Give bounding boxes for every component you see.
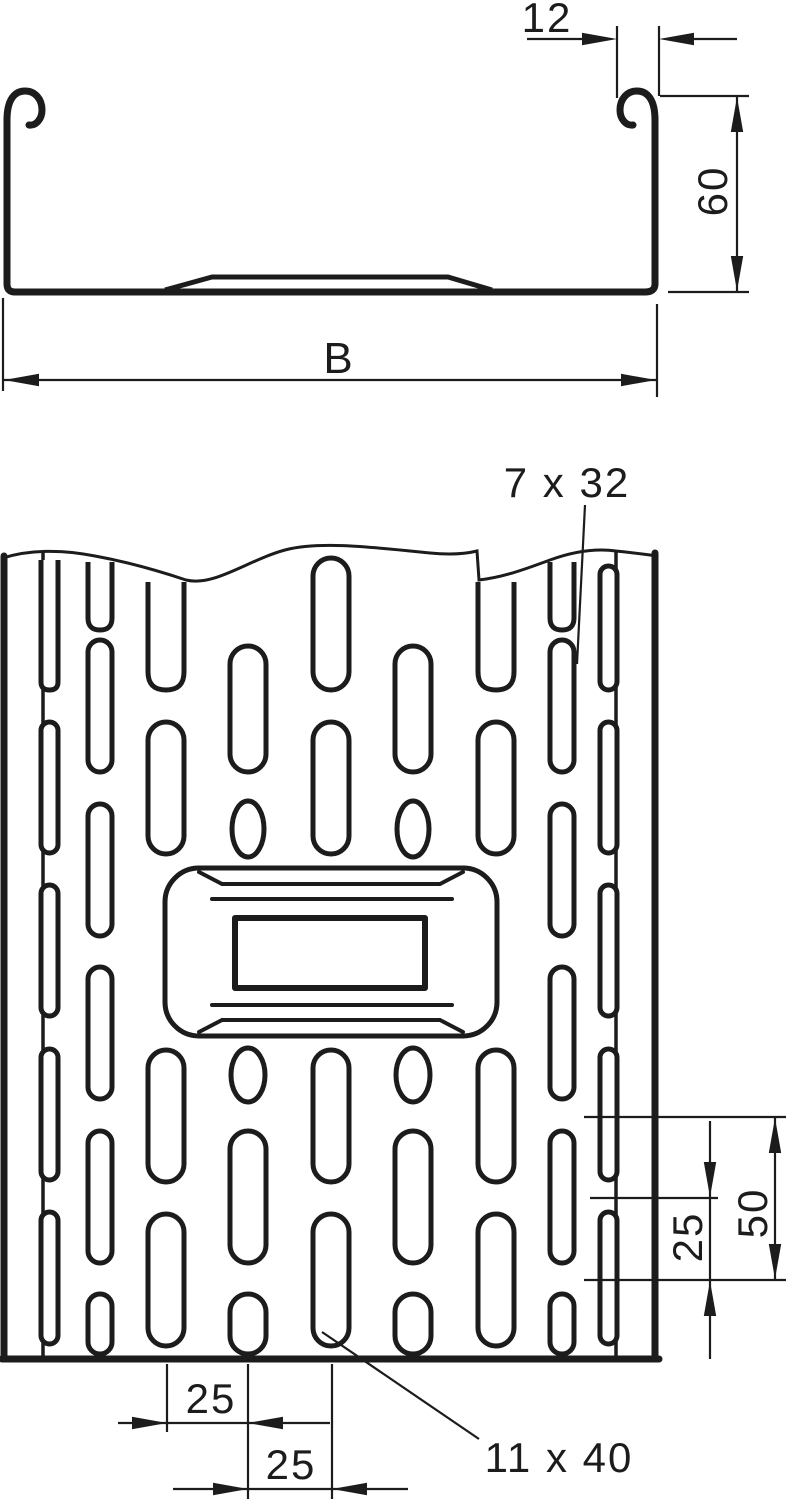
arrow-right-icon xyxy=(213,1483,248,1495)
arrow-right-icon xyxy=(582,33,617,45)
slot xyxy=(395,1131,431,1263)
slot-column-e-center xyxy=(313,558,349,1346)
oval-hole xyxy=(231,1048,265,1102)
slot xyxy=(41,885,58,1016)
slot xyxy=(313,722,349,854)
slot xyxy=(148,1050,184,1182)
emboss-outline xyxy=(165,868,497,1036)
oval-hole xyxy=(396,1048,430,1102)
dim-row-small-value: 25 xyxy=(664,1212,711,1263)
side-slot-size-label: 7 x 32 xyxy=(504,459,630,506)
slot xyxy=(600,566,617,690)
cable-tray-drawing: 12 60 B xyxy=(0,0,786,1500)
slot xyxy=(41,560,58,690)
slot xyxy=(550,804,574,936)
arrow-left-icon xyxy=(332,1483,367,1495)
slot xyxy=(550,1294,574,1354)
slot xyxy=(230,1294,266,1354)
arrow-up-icon xyxy=(731,97,743,132)
left-curl xyxy=(7,91,42,125)
profile-outline xyxy=(7,118,655,292)
slot xyxy=(41,1212,58,1344)
slot xyxy=(88,1131,112,1263)
slot xyxy=(313,1214,349,1346)
slot xyxy=(88,640,112,772)
dimension-width-b: B xyxy=(3,298,657,397)
slot xyxy=(600,1212,617,1344)
slot xyxy=(478,722,514,854)
slot xyxy=(395,646,431,772)
slot xyxy=(313,558,349,690)
dimension-height-60: 60 xyxy=(660,96,749,292)
slot xyxy=(148,1214,184,1346)
dim-flange-value: 12 xyxy=(522,0,573,41)
slot xyxy=(313,1050,349,1182)
slot xyxy=(230,646,266,772)
label-base-slot: 11 x 40 xyxy=(322,1332,633,1481)
slot xyxy=(41,1049,58,1180)
slot xyxy=(478,1050,514,1182)
slot xyxy=(478,1214,514,1346)
slot xyxy=(550,1131,574,1263)
arrow-down-icon xyxy=(704,1162,716,1197)
arrow-up-icon xyxy=(704,1281,716,1316)
slot xyxy=(41,722,58,853)
dim-col-2-value: 25 xyxy=(266,1441,317,1488)
arrow-left-icon xyxy=(248,1417,283,1429)
slot xyxy=(148,722,184,854)
slot xyxy=(88,562,112,630)
slot-column-h xyxy=(550,562,574,1354)
slot xyxy=(230,1131,266,1263)
emboss-knockout-hole xyxy=(235,918,425,988)
slot xyxy=(478,582,514,690)
slot-column-d xyxy=(230,646,266,1354)
extension-lines xyxy=(617,26,659,98)
slot xyxy=(88,804,112,936)
arrow-left-icon xyxy=(4,374,39,386)
arrow-down-icon xyxy=(769,1244,781,1279)
slot xyxy=(148,582,184,690)
dimension-column-pitch: 25 25 xyxy=(118,1364,408,1499)
technical-drawing-page: 12 60 B xyxy=(0,0,786,1500)
arrow-up-icon xyxy=(769,1118,781,1153)
plan-view: 7 x 32 11 x 40 25 50 25 xyxy=(2,459,786,1499)
right-curl xyxy=(620,91,655,125)
slot xyxy=(550,967,574,1099)
oval-hole xyxy=(397,801,429,857)
slot xyxy=(395,1294,431,1354)
arrow-left-icon xyxy=(659,33,694,45)
slot xyxy=(600,1049,617,1180)
oval-hole xyxy=(232,801,264,857)
slot-column-b xyxy=(88,562,112,1354)
slot xyxy=(600,885,617,1016)
slot xyxy=(550,562,574,630)
dimension-flange-12: 12 xyxy=(522,0,737,98)
slot-column-edge-right xyxy=(600,566,617,1344)
slot-column-edge-left xyxy=(41,560,58,1344)
dim-col-1-value: 25 xyxy=(186,1375,237,1422)
dim-width-value: B xyxy=(323,334,354,383)
slot-column-f xyxy=(395,646,431,1354)
arrow-down-icon xyxy=(731,256,743,291)
arrow-right-icon xyxy=(132,1417,167,1429)
leader-line xyxy=(577,505,585,664)
arrow-right-icon xyxy=(621,374,656,386)
dim-height-value: 60 xyxy=(689,166,736,217)
base-slot-size-label: 11 x 40 xyxy=(485,1434,634,1481)
cross-section-view: 12 60 B xyxy=(3,0,749,397)
dim-row-large-value: 50 xyxy=(729,1188,776,1239)
slot xyxy=(550,640,574,772)
slot xyxy=(88,1294,112,1354)
center-emboss xyxy=(165,868,497,1036)
bottom-rib xyxy=(165,277,492,290)
slot xyxy=(88,967,112,1099)
slot xyxy=(600,722,617,853)
